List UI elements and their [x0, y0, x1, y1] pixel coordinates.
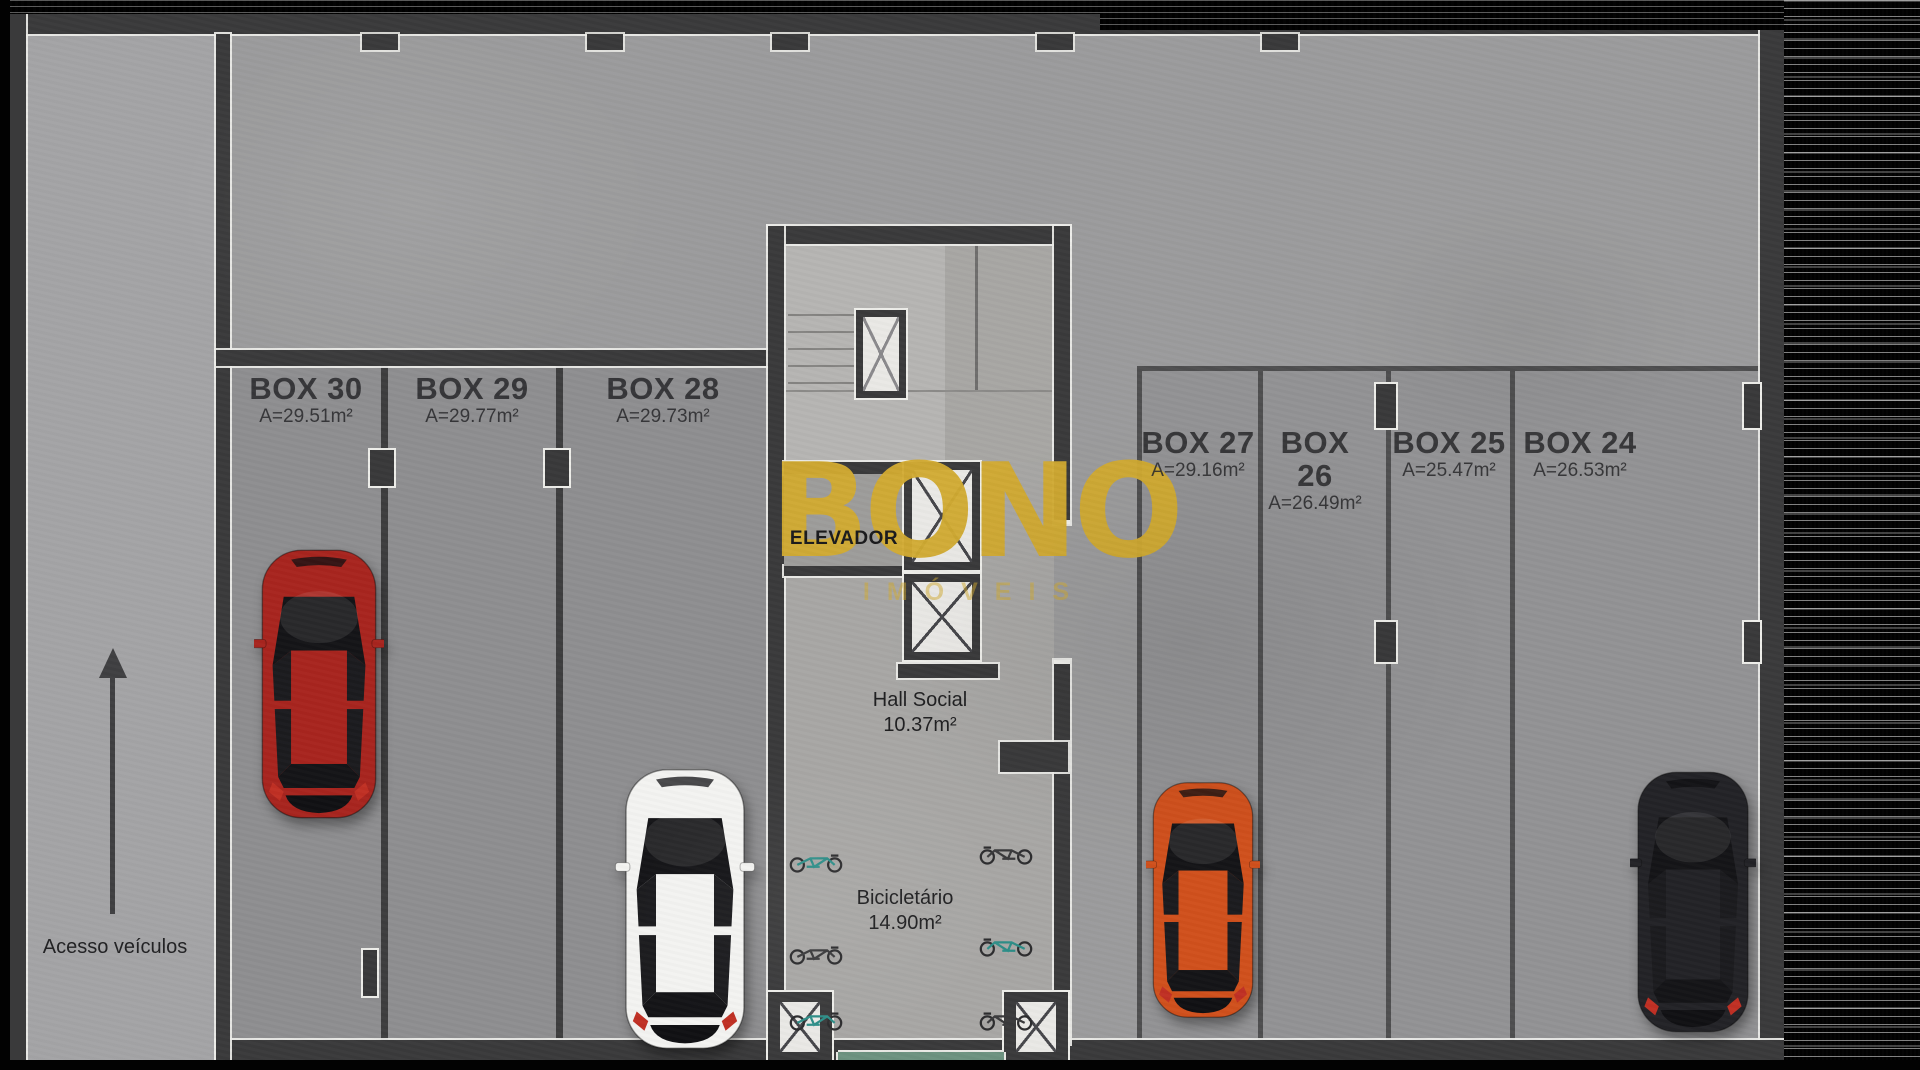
garage-floorplan: BONO IMÓVEIS BOX 30 A=29.51m² BOX 29 A=2… — [0, 0, 1920, 1070]
stall-boundary-line — [1137, 366, 1760, 371]
box-title: BOX 26 — [1262, 426, 1368, 492]
left-boxes-top-wall — [216, 350, 772, 366]
car-graphic — [612, 764, 758, 1054]
car-orange-top-view — [1146, 760, 1260, 1040]
box-title: BOX 30 — [230, 372, 382, 405]
hall-area: 10.37m² — [810, 713, 1030, 738]
hall-wall-stub — [898, 664, 998, 678]
pilaster — [1376, 384, 1396, 428]
hall-wall-stub — [1000, 742, 1068, 772]
vehicle-access-label: Acesso veículos — [25, 936, 205, 959]
car-graphic — [1146, 760, 1260, 1040]
perimeter-wall-right — [1760, 14, 1784, 1060]
parking-box-29: BOX 29 A=29.77m² — [388, 372, 556, 429]
pilaster — [772, 34, 808, 50]
perimeter-wall-left — [10, 14, 26, 1060]
access-arrow-head — [99, 648, 127, 678]
box-title: BOX 28 — [563, 372, 763, 405]
box-area: A=29.16m² — [1140, 459, 1256, 483]
pilaster — [1376, 622, 1396, 662]
box-area: A=26.49m² — [1262, 492, 1368, 516]
car-graphic — [1630, 756, 1756, 1048]
box-title: BOX 25 — [1390, 426, 1508, 459]
wall-stub — [363, 950, 377, 996]
stair-partition-line — [975, 244, 978, 390]
bicycle-icon — [788, 946, 844, 966]
bicycle-icon — [978, 938, 1034, 958]
pilaster — [1744, 622, 1760, 662]
box-area: A=29.77m² — [388, 405, 556, 429]
pilaster — [545, 450, 569, 486]
bike-room-area: 14.90m² — [795, 911, 1015, 936]
parking-box-25: BOX 25 A=25.47m² — [1390, 426, 1508, 483]
car-graphic — [254, 538, 384, 830]
stair-landing-slab — [945, 244, 1054, 462]
driveway-floor — [26, 34, 216, 1060]
hall-social-label: Hall Social 10.37m² — [810, 688, 1030, 738]
box-area: A=29.73m² — [563, 405, 763, 429]
box-title: BOX 27 — [1140, 426, 1256, 459]
image-edge-right-band — [1784, 0, 1920, 1070]
stair-landing-line — [784, 390, 1054, 392]
bicycle-icon — [978, 1012, 1034, 1032]
car-red-top-view — [254, 538, 384, 830]
box-area: A=26.53m² — [1514, 459, 1646, 483]
box-area: A=25.47m² — [1390, 459, 1508, 483]
bicycle-icon — [978, 846, 1034, 866]
image-edge-bottom — [0, 1060, 1920, 1070]
parking-box-30: BOX 30 A=29.51m² — [230, 372, 382, 429]
duct-shaft — [856, 310, 906, 398]
parking-box-28: BOX 28 A=29.73m² — [563, 372, 763, 429]
stairwell-wall-top — [768, 226, 1070, 244]
watermark-brand: BONO — [770, 446, 1162, 576]
image-edge-left — [0, 0, 10, 1070]
box-title: BOX 24 — [1514, 426, 1646, 459]
core-wall-right — [1054, 660, 1070, 1044]
car-white-top-view — [612, 764, 758, 1054]
car-black-top-view — [1630, 756, 1756, 1048]
access-arrow — [110, 674, 115, 914]
parking-box-24: BOX 24 A=26.53m² — [1514, 426, 1646, 483]
bike-room-name: Bicicletário — [795, 886, 1015, 911]
bicycle-icon — [788, 1012, 844, 1032]
box-area: A=29.51m² — [230, 405, 382, 429]
parking-box-27: BOX 27 A=29.16m² — [1140, 426, 1256, 483]
core-wall-left — [768, 226, 784, 1040]
pilaster — [1744, 384, 1760, 428]
pilaster — [362, 34, 398, 50]
bicycle-icon — [788, 854, 844, 874]
bike-room-label: Bicicletário 14.90m² — [795, 886, 1015, 936]
hall-name: Hall Social — [810, 688, 1030, 713]
pilaster — [1262, 34, 1298, 50]
watermark-subtitle: IMÓVEIS — [770, 578, 1162, 607]
pilaster — [1037, 34, 1073, 50]
elevator-label: ELEVADOR — [784, 528, 904, 550]
box-title: BOX 29 — [388, 372, 556, 405]
pilaster — [370, 450, 394, 486]
stair-treads — [788, 314, 860, 398]
parking-box-26: BOX 26 A=26.49m² — [1262, 426, 1368, 516]
driveway-wall — [216, 34, 230, 1060]
pilaster — [587, 34, 623, 50]
